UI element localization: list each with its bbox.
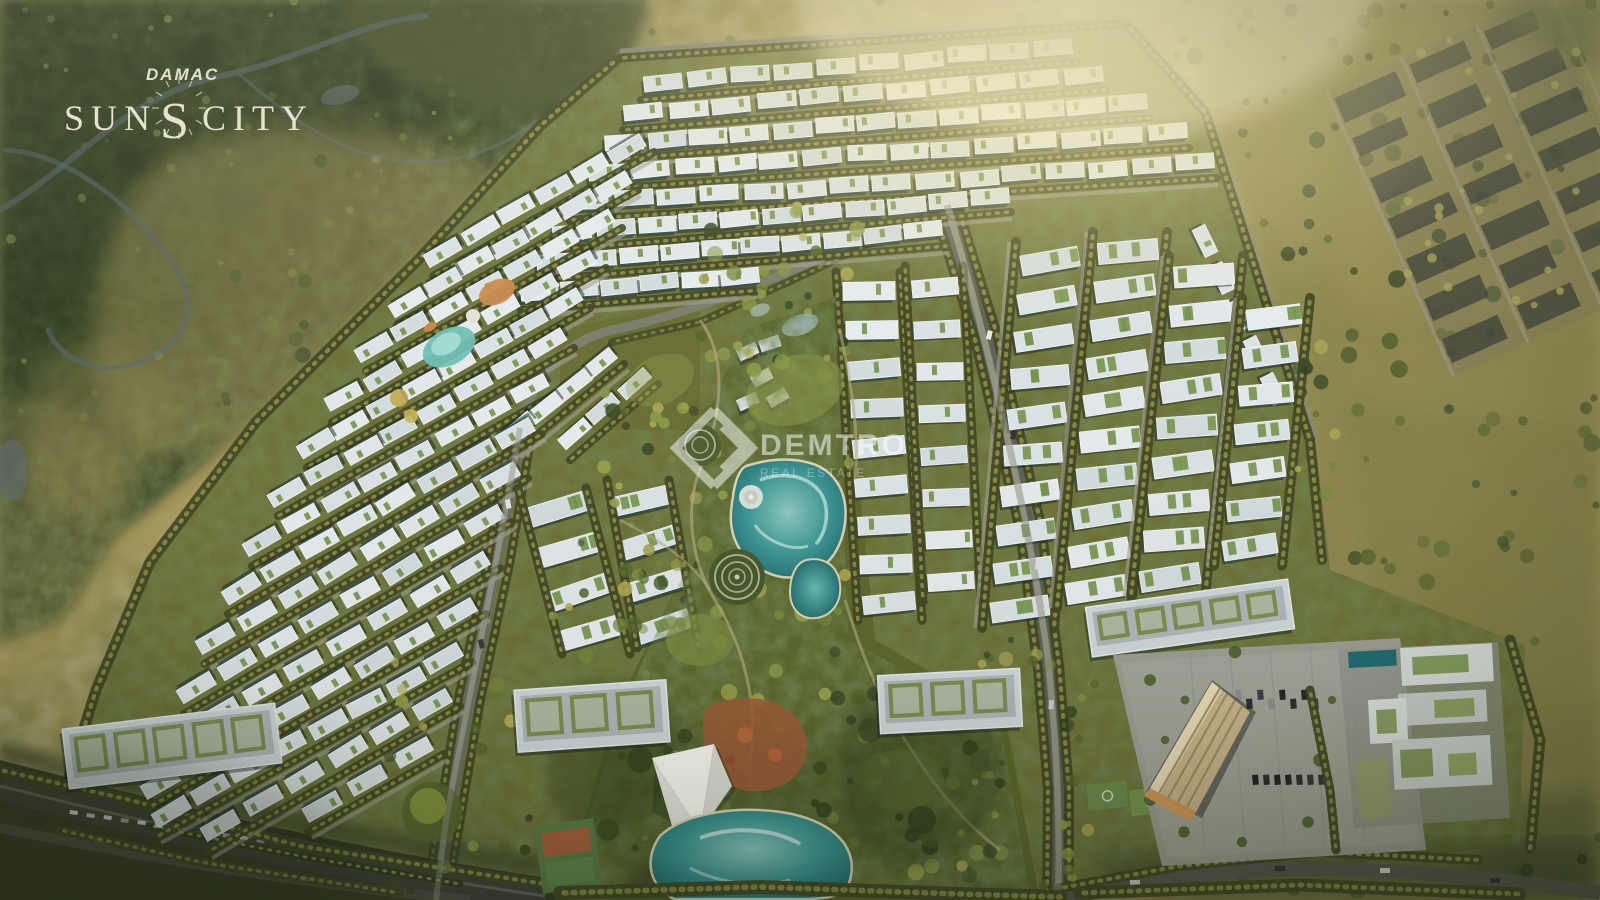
- svg-text:DEMTRO: DEMTRO: [760, 429, 908, 462]
- svg-text:SUN: SUN: [64, 98, 157, 138]
- svg-text:S: S: [160, 93, 189, 150]
- svg-text:DAMAC: DAMAC: [146, 65, 219, 84]
- svg-text:CITY: CITY: [202, 98, 314, 138]
- svg-text:REAL ESTATE: REAL ESTATE: [760, 466, 867, 480]
